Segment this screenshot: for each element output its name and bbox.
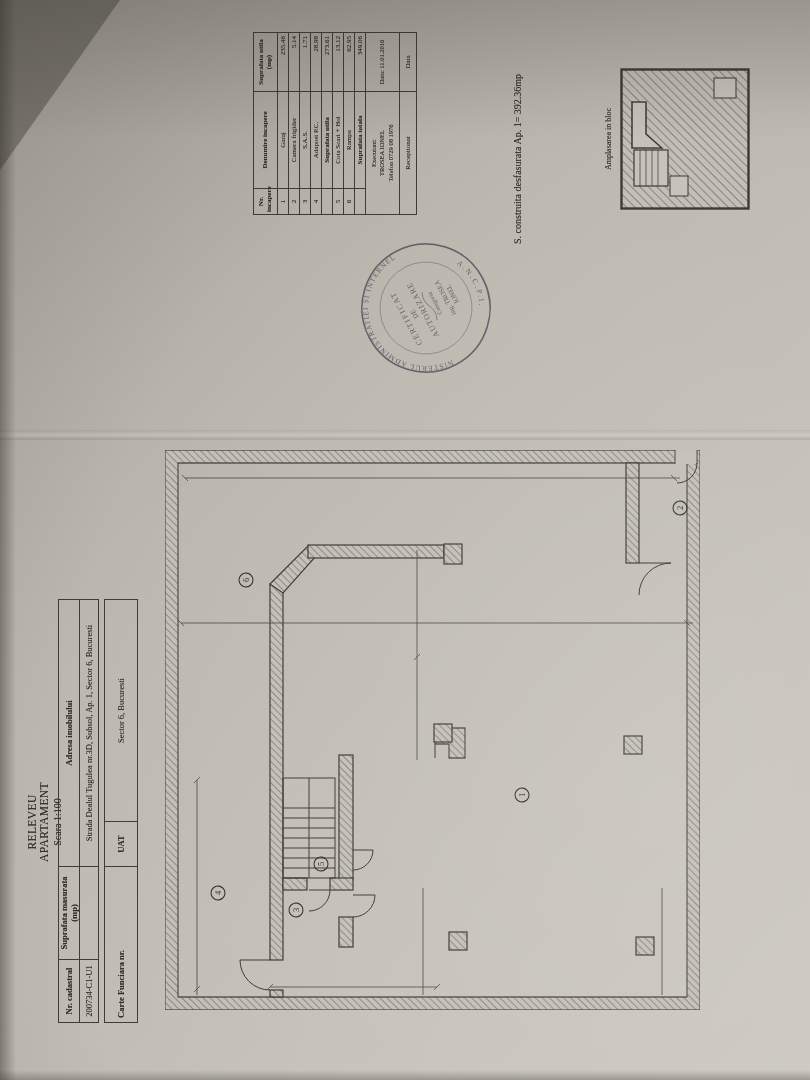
door-arc	[309, 890, 330, 911]
svg-text:5: 5	[316, 862, 326, 866]
plan-walls	[165, 450, 700, 1010]
receptionat-row: Receptionat Data	[400, 33, 417, 215]
room-name: Adapost P.C.	[311, 92, 322, 189]
mini-notch	[714, 78, 736, 98]
page-title: RELEVEU APARTAMENT	[26, 762, 50, 882]
room-nr: 2	[289, 189, 300, 215]
room-label-5: 5	[314, 857, 328, 871]
room-area: 13.12	[333, 33, 344, 92]
document-paper: RELEVEU APARTAMENT Scara 1:100 Nr. cadas…	[0, 0, 810, 1080]
svg-text:1: 1	[517, 793, 527, 797]
col-nr-incapere: Nr. incapere	[254, 189, 278, 215]
room-nr	[355, 189, 366, 215]
door-arc	[353, 895, 375, 917]
room-nr: 4	[311, 189, 322, 215]
room-row: 3 S.A.S. 1.71	[300, 33, 311, 215]
room-name: Camera frigider	[289, 92, 300, 189]
room-row: 1 Garaj 235.46	[278, 33, 289, 215]
svg-text:2: 2	[675, 506, 685, 510]
adresa-value: Strada Dealul Tugulea nr.3D, Subsol, Ap.…	[80, 600, 99, 867]
room-name: S.A.S.	[300, 92, 311, 189]
executant-phone: Telefon 0729 08 1976	[387, 94, 395, 212]
room-nr	[322, 189, 333, 215]
built-area-note: S. construita desfasurata Ap. 1= 392.36m…	[512, 39, 523, 244]
svg-text:6: 6	[241, 578, 251, 582]
cadastral-table: Nr. cadastral Suprafata masurata (mp) Ad…	[58, 599, 99, 1023]
mini-location-plan	[620, 68, 750, 210]
room-name: Rampa	[344, 92, 355, 189]
room-area: 235.46	[278, 33, 289, 92]
uat-value: Sector 6, Bucuresti	[105, 600, 138, 822]
door-arc	[353, 850, 373, 870]
room-label-2: 2	[673, 501, 687, 515]
suprafata-masurata-value	[80, 867, 99, 960]
summary-row: Suprafata totala 349.06	[355, 33, 366, 215]
room-label-1: 1	[515, 788, 529, 802]
room-area: 28.98	[311, 33, 322, 92]
receptionat-cell: Receptionat	[400, 92, 417, 215]
room-row: 6 Rampa 62.95	[344, 33, 355, 215]
stamp-center-text: CERTIFICAT DE AUTORIZARE Categoria ing. …	[388, 266, 470, 348]
room-name: Cota Scari + Hol	[333, 92, 344, 189]
photo-of-floor-plan-document: { "document": { "title": "RELEVEU APARTA…	[0, 0, 810, 1080]
summary-label: Suprafata utila	[322, 92, 333, 189]
col-suprafata-masurata: Suprafata masurata (mp)	[59, 867, 80, 960]
mini-plan-caption: Amplasarea in bloc	[604, 68, 613, 210]
executant-cell: Executant: TROSEA IONEL Telefon 0729 08 …	[366, 92, 400, 215]
mini-stair-block	[634, 150, 668, 186]
uat-label: UAT	[105, 822, 138, 867]
room-label-4: 4	[211, 886, 225, 900]
date-cell: Data: 11.01.2016	[366, 33, 400, 92]
carte-funciara-label: Carte Funciara nr.	[105, 867, 138, 1023]
executant-label: Executant:	[370, 94, 378, 212]
room-nr: 6	[344, 189, 355, 215]
carte-funciara-row: Carte Funciara nr. UAT Sector 6, Bucures…	[105, 600, 138, 1023]
rooms-table: Nr. incapere Denumire incapere Suprafata…	[253, 32, 417, 215]
summary-area: 349.06	[355, 33, 366, 92]
col-denumire: Denumire incapere	[254, 92, 278, 189]
carte-funciara-table: Carte Funciara nr. UAT Sector 6, Bucures…	[104, 599, 138, 1023]
room-row: 2 Camera frigider 5.14	[289, 33, 300, 215]
outer-wall	[165, 450, 700, 1010]
cadastral-value-row: 200734-C1-U1 Strada Dealul Tugulea nr.3D…	[80, 600, 99, 1023]
floor-plan: 1 2 3 4 5 6	[165, 450, 700, 1010]
round-stamp: MINISTERUL ADMINISTRATIEI SI INTERNELOR …	[352, 234, 500, 382]
door-arc	[639, 563, 671, 595]
room-row: 4 Adapost P.C. 28.98	[311, 33, 322, 215]
summary-label: Suprafata totala	[355, 92, 366, 189]
col-adresa: Adresa imobilului	[59, 600, 80, 867]
room-label-3: 3	[289, 903, 303, 917]
room-nr: 5	[333, 189, 344, 215]
mini-room	[670, 176, 688, 196]
summary-row: Suprafata utila 273.61	[322, 33, 333, 215]
room-area: 1.71	[300, 33, 311, 92]
plan-wall-opening	[675, 450, 697, 464]
paper-fold-shadow	[0, 430, 810, 440]
room-nr: 3	[300, 189, 311, 215]
svg-text:3: 3	[291, 908, 301, 912]
svg-text:4: 4	[213, 890, 223, 895]
room-row: 5 Cota Scari + Hol 13.12	[333, 33, 344, 215]
col-suprafata-utila: Suprafata utila (mp)	[254, 33, 278, 92]
executant-name: TROSEA IONEL	[378, 94, 386, 212]
plan-columns	[434, 724, 654, 955]
executant-row: Executant: TROSEA IONEL Telefon 0729 08 …	[366, 33, 400, 215]
room-name: Garaj	[278, 92, 289, 189]
room-area: 5.14	[289, 33, 300, 92]
nr-cadastral-value: 200734-C1-U1	[80, 960, 99, 1023]
data-cell: Data	[400, 33, 417, 92]
rooms-header-row: Nr. incapere Denumire incapere Suprafata…	[254, 33, 278, 215]
cadastral-header-row: Nr. cadastral Suprafata masurata (mp) Ad…	[59, 600, 80, 1023]
room-nr: 1	[278, 189, 289, 215]
room-area: 62.95	[344, 33, 355, 92]
summary-area: 273.61	[322, 33, 333, 92]
room-label-6: 6	[239, 573, 253, 587]
plan-stairs	[283, 778, 335, 878]
door-arc	[240, 960, 270, 990]
col-nr-cadastral: Nr. cadastral	[59, 960, 80, 1023]
